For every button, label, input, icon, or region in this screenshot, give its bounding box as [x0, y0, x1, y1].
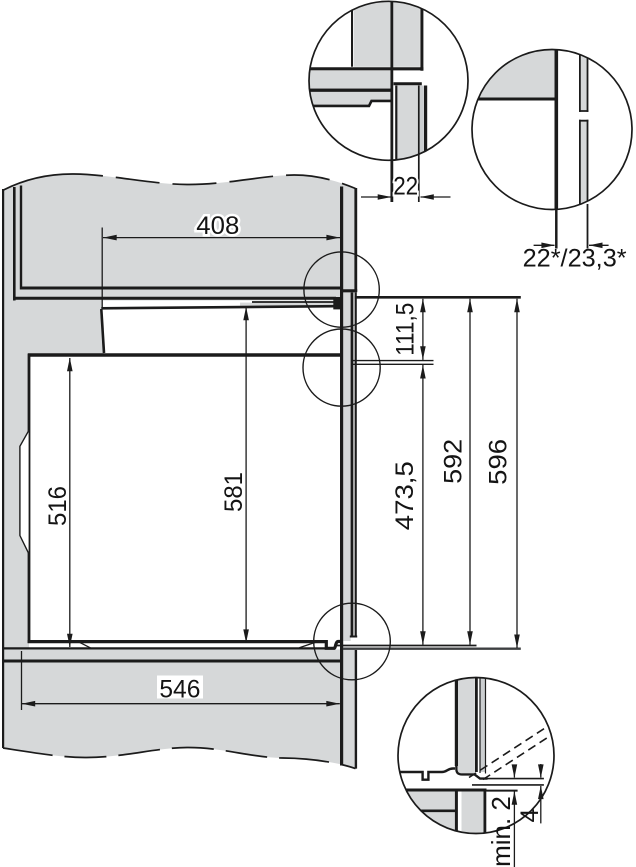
svg-text:592: 592 [440, 439, 468, 484]
svg-text:22: 22 [393, 172, 418, 200]
svg-text:22*/23,3*: 22*/23,3* [523, 245, 627, 273]
svg-text:473,5: 473,5 [391, 461, 419, 530]
svg-text:581: 581 [220, 472, 248, 512]
svg-text:111,5: 111,5 [391, 303, 419, 356]
svg-text:596: 596 [485, 439, 513, 485]
svg-text:516: 516 [44, 486, 72, 526]
svg-text:4: 4 [516, 808, 544, 822]
svg-text:min. 2: min. 2 [486, 796, 516, 867]
svg-text:546: 546 [159, 675, 200, 703]
svg-text:408: 408 [196, 212, 239, 240]
